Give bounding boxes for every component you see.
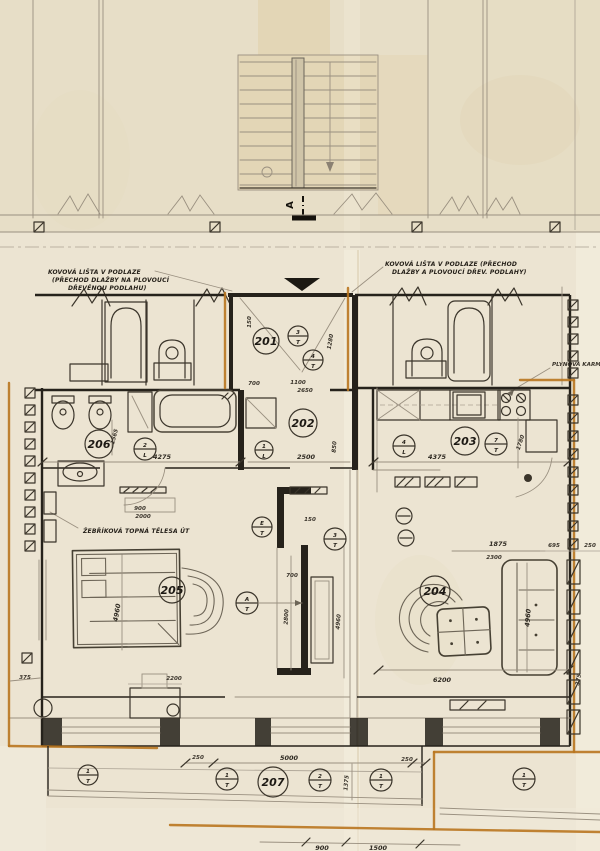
marker-num: 1: [522, 773, 526, 779]
dim-bed-top-b: 2000: [135, 514, 151, 520]
dim-core-h: 2800: [284, 609, 291, 625]
marker-num: 7: [494, 438, 498, 444]
marker-num: E: [260, 521, 264, 527]
room-205-number: 205: [161, 584, 184, 597]
dim-living-top-a: 1875: [489, 540, 508, 548]
note-heating: ŽEBŘÍKOVÁ TOPNÁ TĚLESA ÚT: [82, 528, 190, 535]
marker-num: 4: [311, 354, 315, 360]
dim-living-right-a: 695: [548, 543, 560, 549]
dim-entry-w: 150: [247, 316, 253, 328]
dim-entry-d: 700: [248, 381, 260, 387]
note-gas: PLYNOVÁ KARMA: [552, 361, 600, 368]
marker-num: 1: [86, 769, 90, 775]
dim-bed-top-a: 900: [134, 506, 146, 512]
marker-num: 1: [379, 774, 383, 780]
dim-bath-w: 4275: [153, 453, 172, 461]
marker-num: 3: [296, 330, 300, 336]
note-right-line2: DLAŽBY A PLOVOUCÍ DŘEV. PODLAHY): [392, 269, 527, 276]
floorplan-page: A KOVOVÁ LIŠTA V PODLAZE (PŘECHOD DLAŽBY…: [0, 0, 600, 851]
note-left-line1: KOVOVÁ LIŠTA V PODLAZE: [48, 269, 142, 276]
dim-bottom-b: 1500: [369, 844, 388, 851]
marker-type: L: [262, 454, 266, 460]
dim-balc-r: 250: [401, 757, 413, 763]
marker-num: 2: [318, 774, 322, 780]
dim-core-top: 150: [304, 517, 316, 523]
dim-left-off: 375: [19, 675, 31, 681]
dim-kitchen-w: 4375: [428, 453, 447, 461]
dim-desk-w: 2200: [166, 676, 182, 682]
marker-num: A: [244, 597, 249, 603]
dim-hall-w: 2500: [297, 453, 316, 461]
section-label: A: [285, 201, 296, 209]
dim-balc-w: 5000: [280, 754, 299, 762]
dim-hall-side: 850: [332, 441, 339, 453]
dim-living-h: 4960: [523, 608, 533, 627]
dim-living-right-b: 250: [584, 543, 596, 549]
note-right-line1: KOVOVÁ LIŠTA V PODLAZE (PŘECHOD: [385, 261, 517, 268]
marker-num: 3: [333, 533, 337, 539]
marker-num: 1: [225, 773, 229, 779]
floorplan-drawing: A KOVOVÁ LIŠTA V PODLAZE (PŘECHOD DLAŽBY…: [0, 0, 600, 851]
marker-num: 1: [262, 444, 266, 450]
ref-marker-hall: 1 L: [255, 441, 273, 460]
room-204-number: 204: [424, 585, 447, 598]
marker-num: 4: [402, 440, 406, 446]
marker-type: L: [143, 453, 147, 459]
room-201-number: 201: [255, 335, 278, 348]
marker-num: 2: [143, 443, 147, 449]
dim-hall-top-a: 1100: [290, 380, 306, 386]
marker-type: L: [402, 450, 406, 456]
dim-balc-l: 250: [192, 755, 204, 761]
dim-core-w: 700: [286, 573, 298, 579]
dim-living-w: 6200: [433, 676, 452, 684]
room-207-number: 207: [262, 776, 285, 789]
dim-bottom-a: 900: [315, 844, 329, 851]
dim-living-top-b: 2300: [486, 555, 502, 561]
note-left-line2: (PŘECHOD DLAŽBY NA PLOVOUCÍ: [52, 277, 170, 284]
dim-hall-top-b: 2650: [297, 388, 313, 394]
note-left-line3: DŘEVĚNOU PODLAHU): [68, 285, 147, 292]
room-202-number: 202: [292, 417, 315, 430]
room-206-number: 206: [88, 438, 111, 451]
room-203-number: 203: [454, 435, 477, 448]
